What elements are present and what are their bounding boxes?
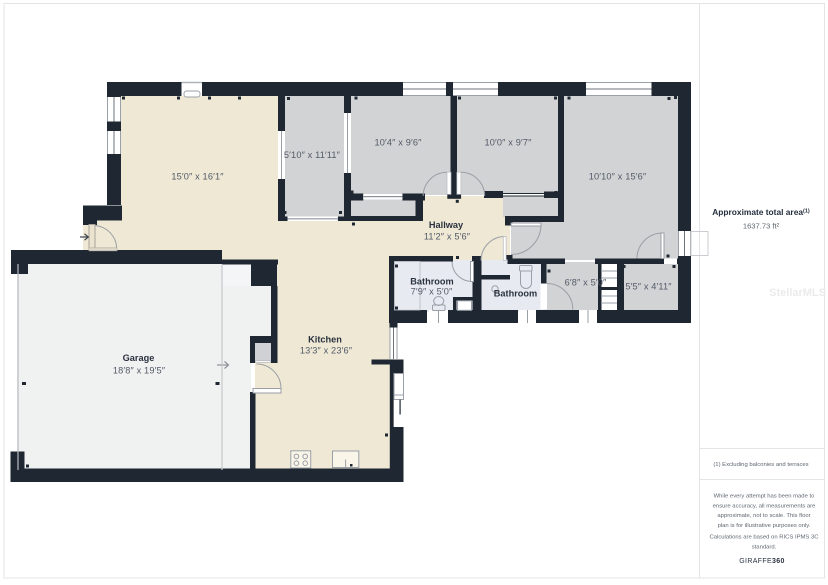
svg-text:plan is for illustrative purpo: plan is for illustrative purposes only. [718,523,811,529]
svg-text:Garage: Garage [123,353,155,363]
svg-text:18′8″ x 19′5″: 18′8″ x 19′5″ [113,366,166,376]
svg-text:1637.73 ft²: 1637.73 ft² [743,222,780,231]
svg-text:Bathroom: Bathroom [494,289,537,299]
svg-text:7′9″ x 5′0″: 7′9″ x 5′0″ [411,287,453,297]
svg-text:10′10″ x 15′6″: 10′10″ x 15′6″ [589,172,647,182]
svg-text:15′0″ x 16′1″: 15′0″ x 16′1″ [171,172,224,182]
svg-text:standard.: standard. [752,544,777,550]
svg-text:(1) Excluding balconies and te: (1) Excluding balconies and terraces [713,462,808,468]
svg-text:While every attempt has been m: While every attempt has been made to [714,494,816,500]
svg-text:6′8″ x 5′0″: 6′8″ x 5′0″ [565,278,607,288]
svg-text:StellarMLS: StellarMLS [769,287,826,299]
svg-text:10′0″ x 9′7″: 10′0″ x 9′7″ [485,138,533,148]
svg-text:11′2″ x 5′6″: 11′2″ x 5′6″ [424,232,471,242]
svg-text:13′3″ x 23′6″: 13′3″ x 23′6″ [300,346,353,356]
svg-text:Calculations are based on RICS: Calculations are based on RICS IPMS 3C [709,535,819,541]
svg-text:Bathroom: Bathroom [410,277,453,287]
svg-text:Kitchen: Kitchen [308,335,342,345]
svg-text:5′10″ x 11′11″: 5′10″ x 11′11″ [284,150,341,160]
svg-text:ensure accuracy, all measureme: ensure accuracy, all measurements are [713,503,816,509]
svg-text:Hallway: Hallway [429,220,464,230]
svg-text:Approximate total area(1): Approximate total area(1) [712,207,810,217]
svg-text:GIRAFFE360: GIRAFFE360 [739,558,785,565]
svg-text:10′4″ x 9′6″: 10′4″ x 9′6″ [375,138,423,148]
svg-text:approximate, not to scale. Thi: approximate, not to scale. This floor [717,513,810,519]
svg-text:5′5″ x 4′11″: 5′5″ x 4′11″ [625,282,672,292]
